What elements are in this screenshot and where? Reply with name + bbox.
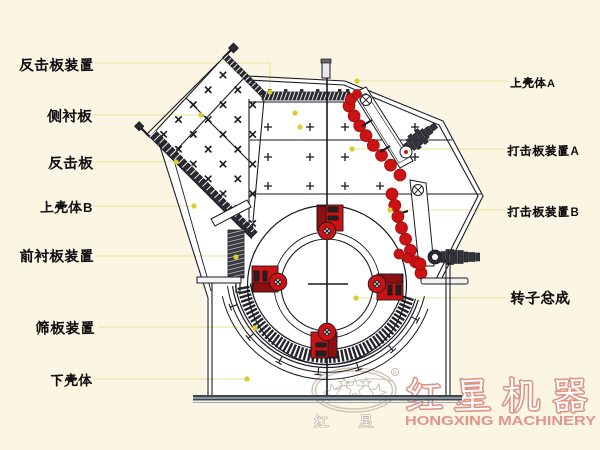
svg-text:R: R bbox=[393, 371, 397, 377]
svg-text:B: B bbox=[571, 207, 579, 219]
svg-text:A: A bbox=[571, 146, 579, 158]
svg-text:A: A bbox=[547, 78, 555, 90]
svg-text:B: B bbox=[83, 200, 92, 215]
svg-text:HONGXING MACHINERY: HONGXING MACHINERY bbox=[405, 414, 597, 428]
